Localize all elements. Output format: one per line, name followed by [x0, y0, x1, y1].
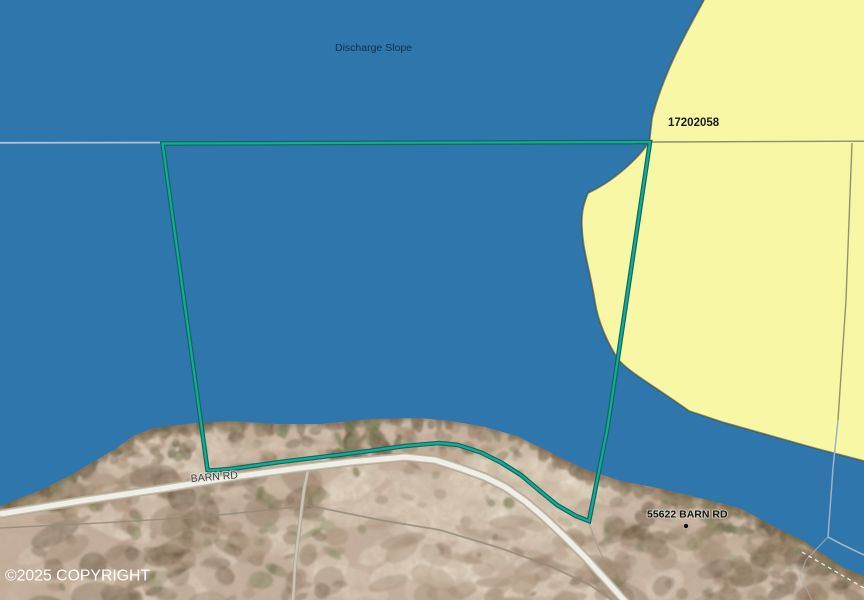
svg-text:55622 BARN RD: 55622 BARN RD [647, 509, 728, 521]
svg-text:Discharge Slope: Discharge Slope [335, 42, 412, 54]
svg-text:©2025 COPYRIGHT: ©2025 COPYRIGHT [5, 568, 150, 585]
svg-text:17202058: 17202058 [668, 117, 720, 129]
